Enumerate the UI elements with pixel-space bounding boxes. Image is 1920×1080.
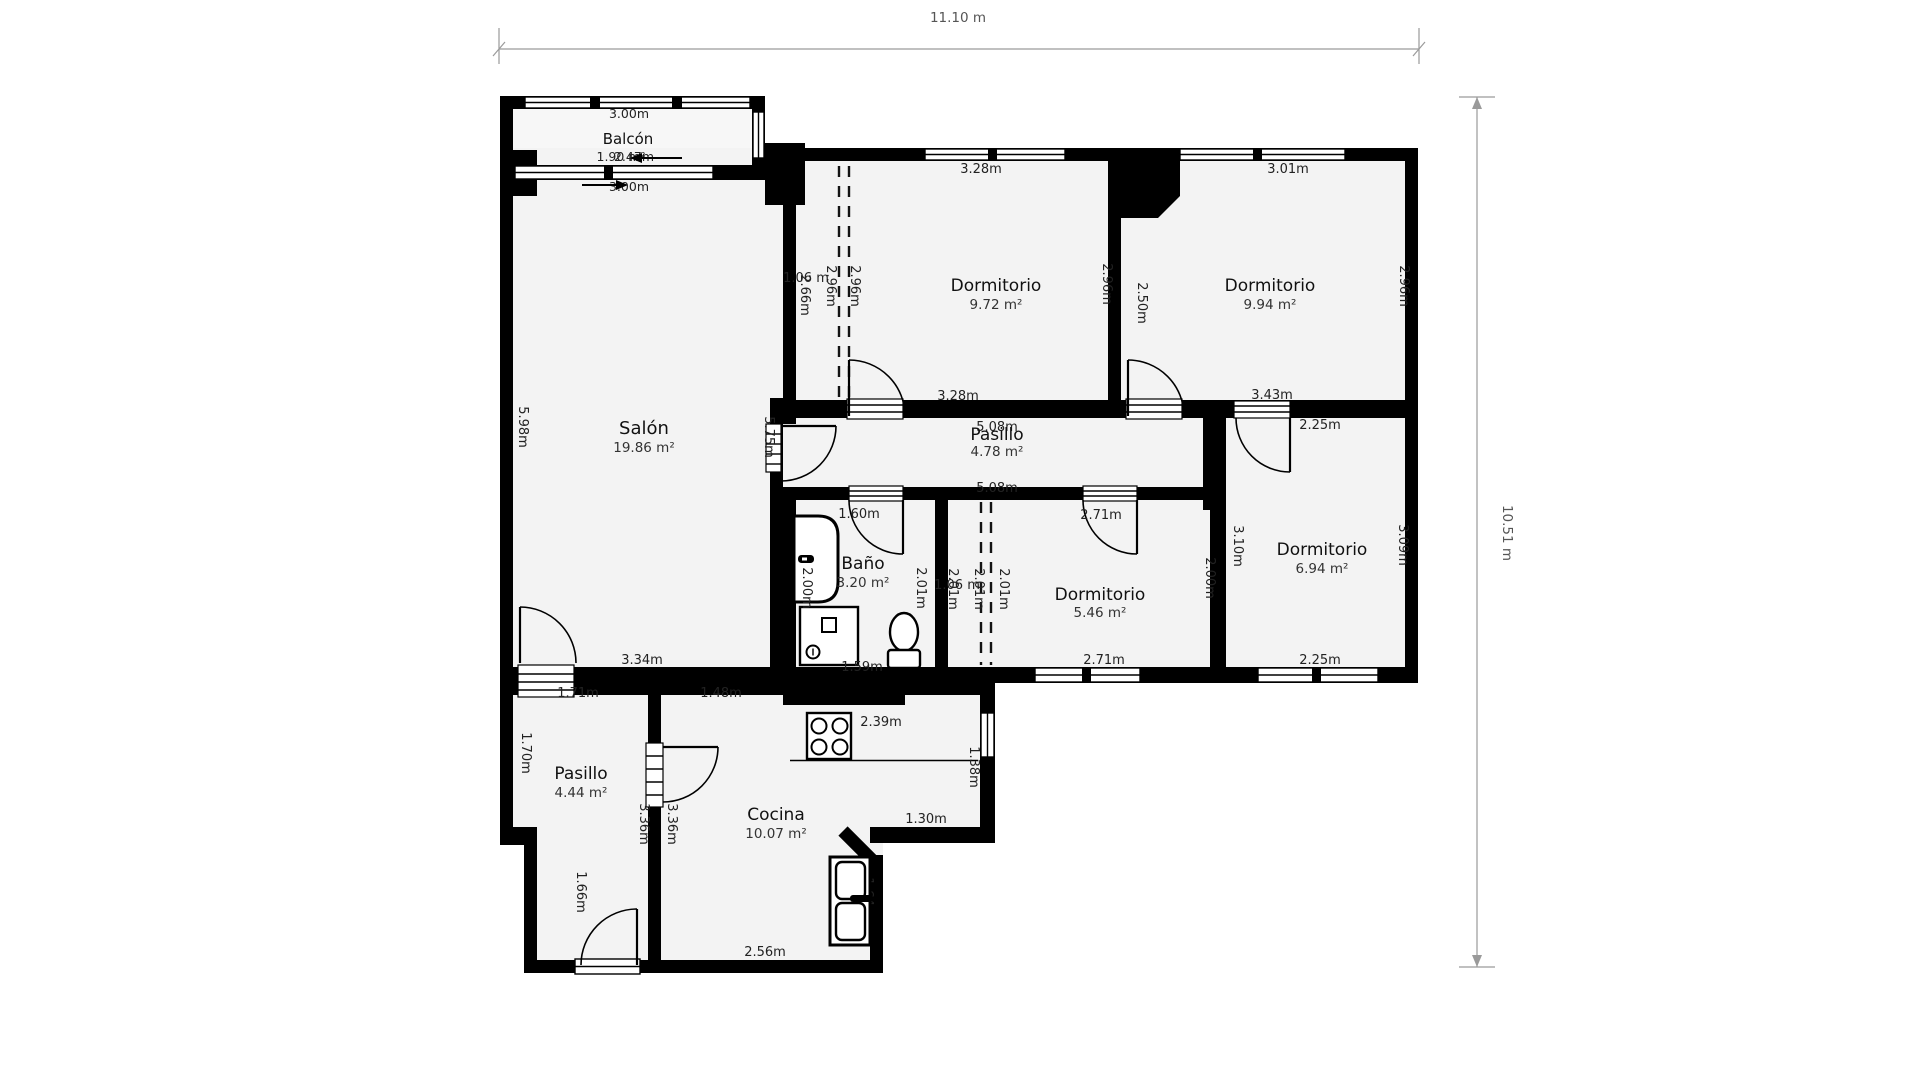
label-wtop-h1: 2.66m: [797, 274, 812, 316]
label-dorm4-dim-bottom: 2.25m: [1299, 653, 1341, 668]
door-opening-dorm2: [1126, 399, 1182, 419]
label-wtop-h2: 2.96m: [823, 265, 838, 307]
label-dorm3-dim-right: 2.00m: [1202, 557, 1217, 599]
door-opening-bano: [849, 486, 903, 501]
label-pasillo2-dim-top: 1.71m: [557, 686, 599, 701]
door-opening-dorm4: [1234, 401, 1290, 418]
wardrobe-bottom-labels: 1.06 m 2.01m 2.01m 2.01m: [934, 568, 1011, 610]
label-salon-dim-left: 5.98m: [515, 406, 530, 448]
label-salon-dim-right: 5.75m: [761, 416, 776, 458]
label-dorm4-dim-top: 2.25m: [1299, 418, 1341, 433]
label-pasillo2-area: 4.44 m²: [555, 785, 608, 801]
label-dorm4-area: 6.94 m²: [1296, 561, 1349, 577]
label-bano-fixture-dim: 1.59m: [841, 660, 883, 675]
shower: [800, 607, 858, 665]
label-salon-area: 19.86 m²: [613, 440, 675, 456]
label-dorm2-dim-top: 3.01m: [1267, 162, 1309, 177]
label-dorm1-dim-right: 2.96m: [1099, 263, 1114, 305]
label-bano-dim-right: 2.01m: [913, 567, 928, 609]
label-dorm3-dim-bottom: 2.71m: [1083, 653, 1125, 668]
label-dorm1-area: 9.72 m²: [970, 297, 1023, 313]
door-opening-dorm1: [847, 399, 903, 419]
label-dorm1-name: Dormitorio: [951, 276, 1042, 296]
label-wbot-h2: 2.01m: [971, 568, 986, 610]
label-bano-area: 3.20 m²: [837, 575, 890, 591]
label-dorm1-dim-top: 3.28m: [960, 162, 1002, 177]
window-balcony-right: [753, 112, 764, 158]
label-bano-dim-left: 2.00m: [799, 567, 814, 609]
label-cocina-dim-top: 1.48m: [700, 686, 742, 701]
label-pasillo2-name: Pasillo: [554, 764, 607, 784]
label-wbot-h1: 2.01m: [945, 568, 960, 610]
label-pasillo2-dim-left-upper: 1.70m: [518, 732, 533, 774]
dimension-top: 11.10 m: [493, 10, 1425, 64]
label-cocina-pass-dim: 1.30m: [905, 812, 947, 827]
label-dorm2-dim-left: 2.50m: [1134, 282, 1149, 324]
label-pasillo-name: Pasillo: [970, 425, 1023, 445]
label-dorm3-name: Dormitorio: [1055, 585, 1146, 605]
label-dorm4-name: Dormitorio: [1277, 540, 1368, 560]
window-dorm4-bottom: [1258, 668, 1378, 682]
window-salon-top: [515, 166, 713, 179]
label-dorm2-name: Dormitorio: [1225, 276, 1316, 296]
label-dorm2-dim-right: 2.96m: [1396, 265, 1411, 307]
stove: [807, 713, 851, 759]
label-dorm4-dim-right: 3.09m: [1395, 524, 1410, 566]
label-pasillo2-dim-left-lower: 1.66m: [573, 871, 588, 913]
label-pasillo-area: 4.78 m²: [971, 444, 1024, 460]
label-salon-name: Salón: [619, 418, 669, 439]
label-bano-door-dim: 1.60m: [838, 507, 880, 522]
label-cocina-dim-bottom: 2.56m: [744, 945, 786, 960]
door-opening-pasillo2-cocina: [646, 743, 663, 807]
floorplan-page: 1.64m 11.10 m 10.51 m 3.00m Balcón 1.90 …: [0, 0, 1920, 1080]
dimension-right: 10.51 m: [1459, 97, 1515, 967]
label-cocina-area: 10.07 m²: [745, 826, 807, 842]
label-dorm2-dim-bottom: 3.43m: [1251, 388, 1293, 403]
floor-plan-svg: 1.64m 11.10 m 10.51 m 3.00m Balcón 1.90 …: [0, 0, 1920, 1080]
label-dorm4-dim-left: 3.10m: [1230, 525, 1245, 567]
label-pasillo2-dim-right1: 3.36m: [636, 803, 651, 845]
label-pasillo-dim-bottom: 5.08m: [976, 481, 1018, 496]
label-balcon-name: Balcón: [603, 130, 654, 148]
door-opening-dorm3: [1083, 486, 1137, 501]
room-pasillo: 5.08m Pasillo 4.78 m² 5.08m: [970, 420, 1023, 496]
label-pasillo2-dim-right2: 3.36m: [664, 803, 679, 845]
label-dorm3-dim-top: 2.71m: [1080, 508, 1122, 523]
kitchen-sink: [830, 857, 872, 945]
label-salon-dim-bottom: 3.34m: [621, 653, 663, 668]
toilet: [888, 613, 920, 668]
label-dorm1-dim-bottom: 3.28m: [937, 389, 979, 404]
window-dorm2-top: [1180, 149, 1345, 160]
label-cocina-dim-right: 1.38m: [966, 746, 981, 788]
label-wtop-h3: 2.96m: [847, 265, 862, 307]
label-dorm3-area: 5.46 m²: [1074, 605, 1127, 621]
label-wbot-h3: 2.01m: [996, 568, 1011, 610]
label-cocina-counter-dim: 2.39m: [860, 715, 902, 730]
window-cocina-right: [981, 713, 994, 757]
window-dorm1-top: [925, 149, 1065, 160]
label-bano-name: Baño: [841, 554, 884, 574]
label-overall-width: 11.10 m: [930, 10, 986, 26]
label-balcon-dim-bottom: 3.00m: [609, 179, 649, 194]
label-overall-height: 10.51 m: [1499, 505, 1515, 561]
label-cocina-name: Cocina: [747, 805, 805, 825]
label-dorm2-area: 9.94 m²: [1244, 297, 1297, 313]
label-balcon-dim-top: 3.00m: [609, 106, 649, 121]
window-pasillo2-bottom: [575, 959, 640, 974]
window-dorm3-bottom: [1035, 668, 1140, 682]
